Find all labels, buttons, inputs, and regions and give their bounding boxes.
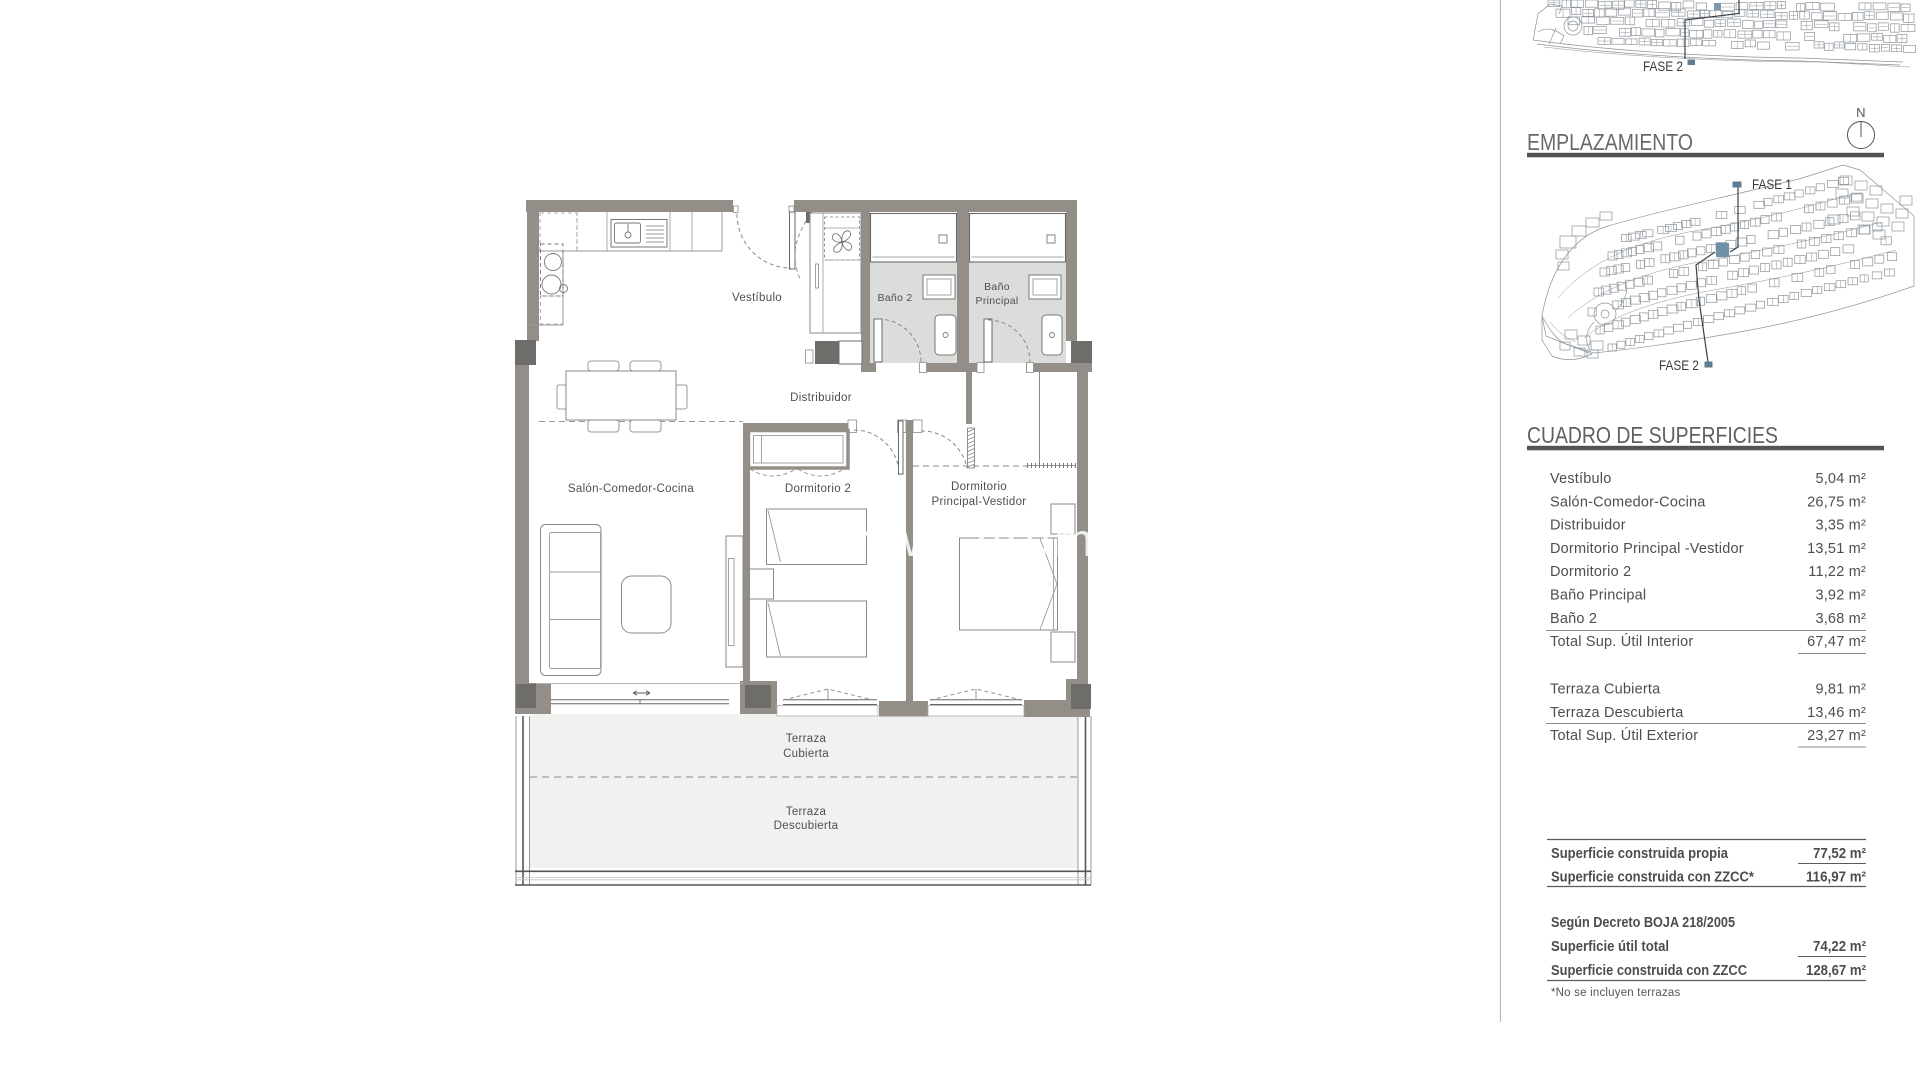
svg-text:Vestíbulo: Vestíbulo xyxy=(1550,471,1611,487)
svg-text:Superficie útil total: Superficie útil total xyxy=(1551,939,1669,955)
svg-text:Terraza: Terraza xyxy=(786,806,827,818)
svg-text:*No se incluyen terrazas: *No se incluyen terrazas xyxy=(1551,987,1680,999)
svg-text:74,22 m²: 74,22 m² xyxy=(1813,939,1866,955)
svg-text:Baño 2: Baño 2 xyxy=(877,292,912,304)
svg-text:www.promocionesobranueva.com: www.promocionesobranueva.com xyxy=(849,514,1652,566)
svg-text:Terraza Descubierta: Terraza Descubierta xyxy=(1550,705,1684,721)
svg-text:5,04 m²: 5,04 m² xyxy=(1815,471,1866,487)
svg-text:13,51 m²: 13,51 m² xyxy=(1807,541,1866,557)
svg-text:Total Sup. Útil Interior: Total Sup. Útil Interior xyxy=(1550,633,1693,650)
svg-text:Vestíbulo: Vestíbulo xyxy=(732,292,782,304)
svg-text:Terraza Cubierta: Terraza Cubierta xyxy=(1550,682,1661,698)
svg-text:Cubierta: Cubierta xyxy=(783,748,829,760)
svg-text:26,75 m²: 26,75 m² xyxy=(1807,494,1866,510)
svg-text:EMPLAZAMIENTO: EMPLAZAMIENTO xyxy=(1527,129,1693,155)
svg-text:Según Decreto BOJA 218/2005: Según Decreto BOJA 218/2005 xyxy=(1551,915,1735,931)
svg-text:23,27 m²: 23,27 m² xyxy=(1807,728,1866,744)
svg-text:Baño 2: Baño 2 xyxy=(1550,611,1597,627)
svg-text:Dormitorio Principal -Vestidor: Dormitorio Principal -Vestidor xyxy=(1550,541,1744,557)
svg-text:Salón-Comedor-Cocina: Salón-Comedor-Cocina xyxy=(568,483,694,495)
svg-text:128,67 m²: 128,67 m² xyxy=(1806,963,1866,979)
svg-text:Dormitorio: Dormitorio xyxy=(951,481,1007,493)
svg-text:77,52 m²: 77,52 m² xyxy=(1813,846,1866,862)
svg-text:Superficie construida con ZZCC: Superficie construida con ZZCC xyxy=(1551,963,1747,979)
svg-text:116,97 m²: 116,97 m² xyxy=(1806,870,1866,886)
svg-text:13,46 m²: 13,46 m² xyxy=(1807,705,1866,721)
svg-text:Baño: Baño xyxy=(984,281,1010,293)
svg-text:Descubierta: Descubierta xyxy=(774,820,839,832)
svg-text:N: N xyxy=(1856,105,1866,120)
svg-text:Superficie construida propia: Superficie construida propia xyxy=(1551,846,1729,862)
svg-text:Distribuidor: Distribuidor xyxy=(1550,518,1626,534)
svg-text:Dormitorio 2: Dormitorio 2 xyxy=(785,483,851,495)
svg-text:Terraza: Terraza xyxy=(786,733,827,745)
svg-text:3,35 m²: 3,35 m² xyxy=(1815,518,1866,534)
svg-text:FASE 1: FASE 1 xyxy=(1752,177,1792,192)
svg-text:FASE 2: FASE 2 xyxy=(1659,358,1699,373)
svg-text:Baño Principal: Baño Principal xyxy=(1550,588,1646,604)
svg-text:Salón-Comedor-Cocina: Salón-Comedor-Cocina xyxy=(1550,494,1706,510)
svg-text:3,92 m²: 3,92 m² xyxy=(1815,588,1866,604)
svg-text:Total Sup. Útil Exterior: Total Sup. Útil Exterior xyxy=(1550,727,1698,744)
svg-text:FASE 2: FASE 2 xyxy=(1643,59,1683,74)
svg-text:11,22 m²: 11,22 m² xyxy=(1808,564,1866,580)
svg-text:67,47 m²: 67,47 m² xyxy=(1807,634,1866,650)
svg-text:3,68 m²: 3,68 m² xyxy=(1815,611,1866,627)
svg-text:CUADRO DE SUPERFICIES: CUADRO DE SUPERFICIES xyxy=(1527,422,1778,448)
svg-text:Distribuidor: Distribuidor xyxy=(790,392,852,404)
svg-text:Dormitorio 2: Dormitorio 2 xyxy=(1550,564,1631,580)
svg-text:Principal-Vestidor: Principal-Vestidor xyxy=(932,496,1027,508)
svg-text:Superficie construida con ZZCC: Superficie construida con ZZCC* xyxy=(1551,870,1754,886)
svg-text:Principal: Principal xyxy=(976,295,1019,307)
svg-text:9,81 m²: 9,81 m² xyxy=(1815,682,1866,698)
